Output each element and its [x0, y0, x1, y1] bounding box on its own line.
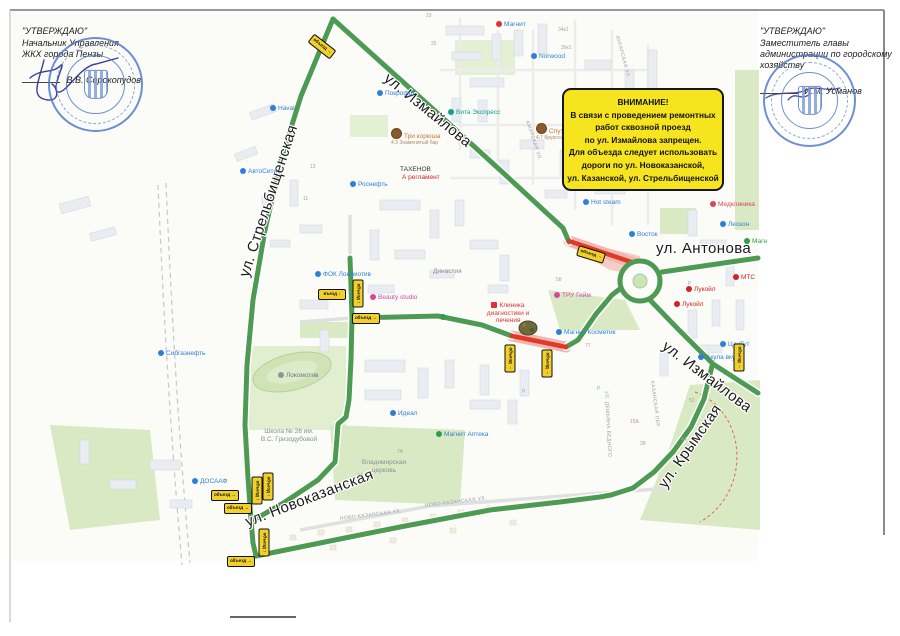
- detour-sign: въезд ↓: [318, 289, 346, 300]
- minor-street-label: НОВО-КАЗАНСКАЯ УЛ.: [425, 495, 487, 509]
- poi-icon: [192, 478, 198, 484]
- detour-sign: объезд →: [505, 344, 516, 372]
- official-stamp-right: [763, 54, 856, 147]
- poi-icon: [270, 105, 276, 111]
- detour-sign: объезд ↑: [353, 279, 364, 307]
- poi-icon: [744, 238, 750, 244]
- poi-icon: [556, 329, 562, 335]
- poi-icon: [536, 123, 547, 134]
- approval-title: "УТВЕРЖДАЮ": [22, 26, 182, 37]
- coat-of-arms: [84, 69, 108, 98]
- detour-sign: объезд ↑: [259, 528, 270, 556]
- poi-icon: [733, 274, 739, 280]
- house-number: 11: [303, 196, 308, 202]
- house-number: 52: [689, 398, 695, 404]
- stamp-outer-ring: [763, 54, 856, 147]
- notice-title: ВНИМАНИЕ!: [567, 96, 719, 109]
- warning-notice: ВНИМАНИЕ! В связи с проведением ремонтны…: [562, 88, 724, 191]
- minor-street-label: АНГАРСКАЯ УЛ.: [614, 35, 631, 79]
- poi-icon: [554, 292, 560, 298]
- poi-label: Владимирская церковь: [356, 459, 412, 474]
- notice-line: работ сквозной проезд: [567, 121, 719, 134]
- poi-label: Клиника диагностики и лечения: [478, 302, 538, 325]
- notice-line: В связи с проведением ремонтных: [567, 109, 719, 122]
- poi-label: МТС: [733, 274, 755, 282]
- poi-icon: [436, 431, 442, 437]
- coat-of-arms: [798, 85, 822, 114]
- poi-icon: [720, 341, 726, 347]
- house-number: 15А: [630, 419, 639, 425]
- poi-label: А регламент: [402, 174, 440, 182]
- detour-sign: объезд →: [542, 349, 553, 377]
- detour-sign: объезд →: [211, 490, 239, 501]
- house-number: 38: [640, 441, 646, 447]
- detour-sign: объезд ↑: [263, 472, 274, 500]
- poi-icon: [686, 286, 692, 292]
- poi-icon: [278, 372, 284, 378]
- detour-sign: объезд →: [308, 33, 337, 59]
- poi-label: Лукойл: [686, 286, 716, 294]
- notice-line: по ул. Измайлова запрещен.: [567, 134, 719, 147]
- poi-icon: [674, 301, 680, 307]
- house-number: 34к1: [558, 27, 569, 33]
- poi-label: ФОК Локомотив: [315, 271, 371, 279]
- poi-label: Роснефть: [350, 181, 388, 189]
- poi-icon: [377, 90, 383, 96]
- poi-label: Лукойл: [674, 301, 704, 309]
- scanned-detour-map-page: "УТВЕРЖДАЮ" Начальник Управления ЖКХ гор…: [0, 0, 900, 636]
- detour-sign: объезд →: [352, 313, 380, 324]
- poi-icon: [350, 181, 356, 187]
- notice-line: Для объезда следует использовать: [567, 146, 719, 159]
- poi-icon: [448, 109, 454, 115]
- detour-sign: объезд →: [576, 245, 606, 264]
- poi-icon: [491, 302, 497, 308]
- house-number: 13: [310, 164, 316, 170]
- poi-label: ТРУ Гейм: [554, 292, 591, 300]
- house-number: 36к1: [561, 45, 572, 51]
- poi-icon: [158, 350, 164, 356]
- detour-sign: объезд →: [224, 503, 252, 514]
- house-number: 77: [585, 343, 591, 349]
- minor-street-label: Р: [597, 386, 601, 392]
- poi-label: Школа № 26 им. В.С. Гризодубовой: [258, 428, 320, 443]
- poi-label: Магн: [744, 238, 767, 246]
- poi-icon: [698, 354, 704, 360]
- poi-label: АвтоСити: [240, 168, 277, 176]
- poi-icon: [496, 21, 502, 27]
- poi-label: Идеал: [390, 410, 418, 418]
- poi-label: Магнит Косметик: [556, 329, 615, 337]
- house-number: 44: [681, 437, 687, 443]
- detour-sign: объезд →: [734, 343, 745, 371]
- poi-label: Haval: [270, 105, 295, 113]
- poi-icon: [240, 168, 246, 174]
- poi-label: Медклиника: [710, 201, 755, 209]
- house-number: 23: [426, 13, 432, 19]
- official-stamp-left: [48, 37, 143, 132]
- poi-icon: [390, 410, 396, 416]
- house-number: 58: [556, 277, 562, 283]
- poi-label: Династия: [433, 268, 462, 276]
- poi-icon: [720, 221, 726, 227]
- poi-icon: [583, 199, 589, 205]
- poi-icon: [370, 294, 376, 300]
- poi-label: Магнит Аптека: [436, 431, 488, 439]
- notice-line: ул. Казанской, ул. Стрельбищенской: [567, 172, 719, 185]
- minor-street-label: НОВО-КАЗАНСКАЯ УЛ.: [340, 508, 402, 522]
- poi-label: ДОСААФ: [192, 478, 227, 486]
- detour-sign: объезд →: [227, 556, 255, 567]
- stamp-outer-ring: [48, 37, 143, 132]
- poi-label: Лескон: [720, 221, 749, 229]
- house-number: 25: [431, 41, 437, 47]
- poi-label: Hot steam: [583, 199, 621, 207]
- poi-icon: [710, 201, 716, 207]
- poi-icon: [531, 53, 537, 59]
- poi-icon: [391, 128, 402, 139]
- minor-street-label: КАЗАНСКАЯ ПЕР.: [649, 381, 661, 429]
- poi-label: Покрофф: [377, 90, 414, 98]
- detour-sign: объезд ↑: [252, 476, 263, 504]
- poi-label: Сибгазнефть: [158, 350, 206, 358]
- poi-label: Три корюша4,3 Знаменитый бар: [391, 128, 441, 146]
- poi-icon: [629, 231, 635, 237]
- minor-street-label: УЛ. ДЕМЬЯНА БЕДНОГО: [603, 391, 612, 458]
- notice-line: дороги по ул. Новоказанской,: [567, 159, 719, 172]
- poi-label: Восток: [629, 231, 658, 239]
- poi-label: Вита Экспресс: [448, 109, 500, 117]
- approval-role: Заместитель главы: [760, 38, 900, 49]
- poi-label: Norwood: [531, 53, 565, 61]
- minor-street-label: Р: [522, 389, 526, 395]
- poi-label: ТАХЕНОВ: [400, 166, 431, 174]
- poi-icon: [315, 271, 321, 277]
- poi-label: Магнит: [496, 21, 526, 29]
- poi-label: Локомотив: [278, 372, 318, 380]
- house-number: 7А: [397, 449, 403, 455]
- poi-label: [440, 314, 448, 322]
- approval-title: "УТВЕРЖДАЮ": [760, 26, 900, 37]
- poi-label: Beauty studio: [370, 294, 417, 302]
- poi-icon: [440, 314, 446, 320]
